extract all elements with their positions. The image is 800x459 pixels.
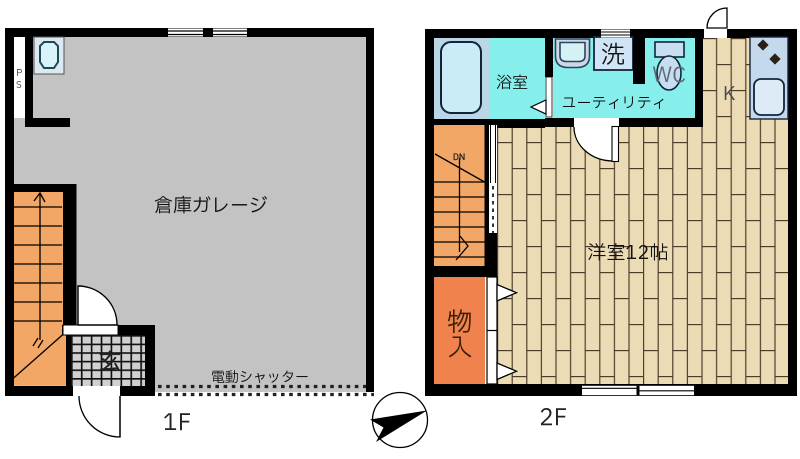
svg-text:電動シャッター: 電動シャッター (211, 368, 309, 389)
svg-text:入: 入 (447, 329, 472, 367)
svg-text:K: K (723, 81, 736, 109)
svg-text:倉庫ガレージ: 倉庫ガレージ (154, 193, 268, 221)
svg-text:2F: 2F (539, 402, 567, 436)
svg-text:洋室12帖: 洋室12帖 (588, 240, 669, 268)
svg-text:WC: WC (652, 61, 685, 92)
svg-text:DN: DN (453, 151, 466, 164)
svg-text:洗: 洗 (601, 38, 625, 74)
svg-text:浴室: 浴室 (496, 72, 528, 96)
svg-text:ユーティリティ: ユーティリティ (561, 92, 666, 115)
svg-text:S: S (16, 79, 22, 93)
svg-text:玄: 玄 (99, 346, 121, 379)
svg-text:1F: 1F (163, 407, 191, 441)
